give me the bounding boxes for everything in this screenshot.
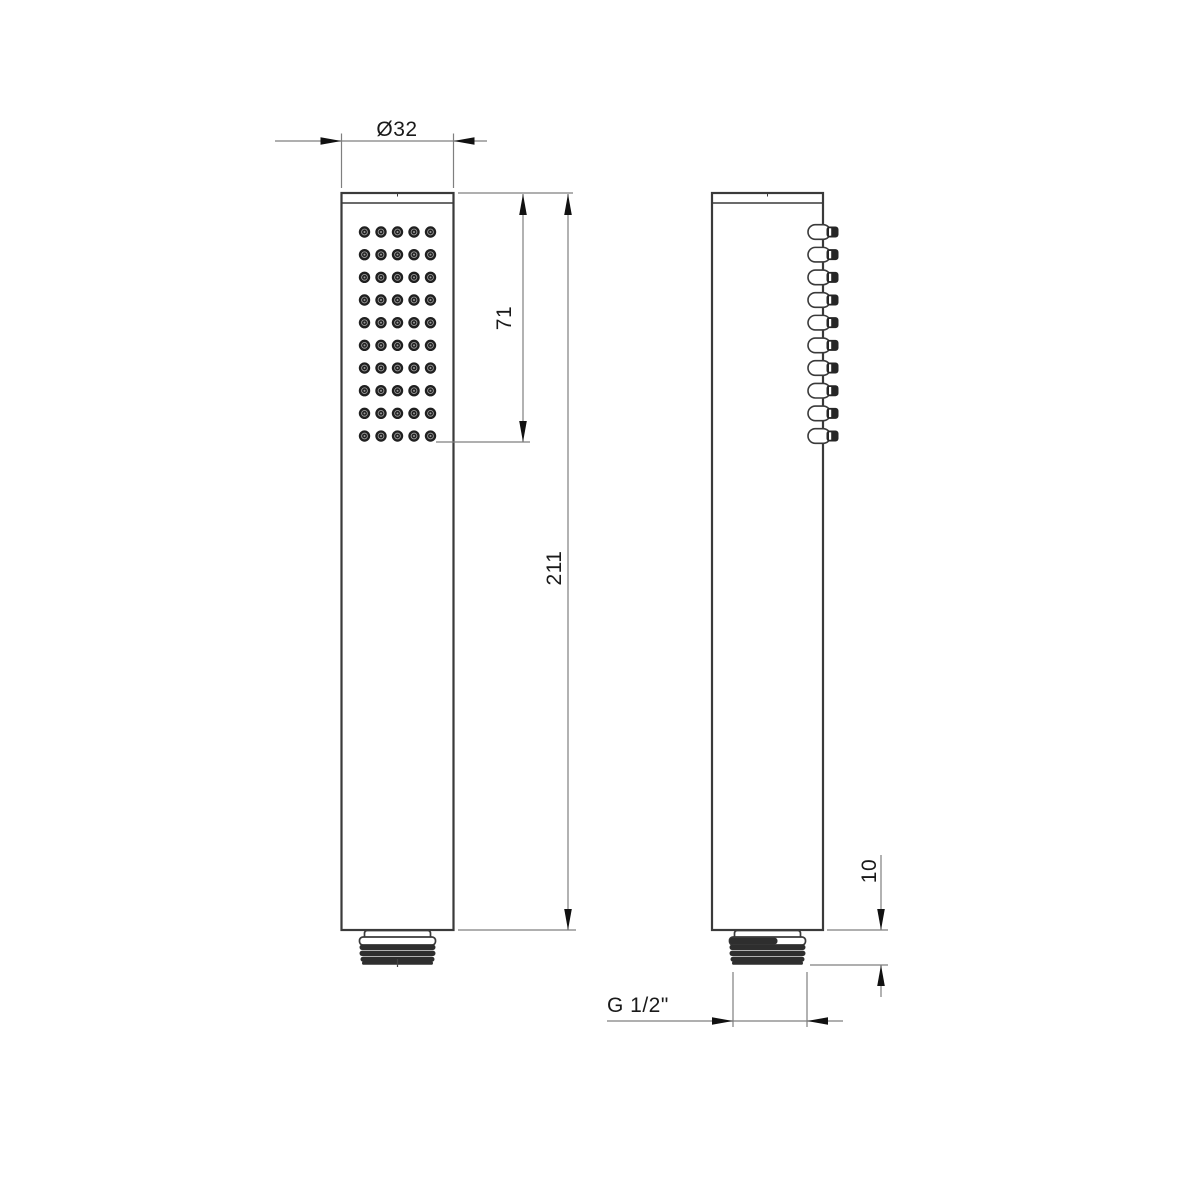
arrowhead <box>807 1017 828 1024</box>
nozzle-center <box>430 390 432 392</box>
nozzle-center <box>413 299 415 301</box>
side-nozzle-tip-slit <box>829 296 831 303</box>
nozzle-center <box>430 299 432 301</box>
dim-overall-length-label: 211 <box>543 551 566 586</box>
dim-thread-length-label: 10 <box>858 859 881 883</box>
nozzle-center <box>413 412 415 414</box>
nozzle-center <box>380 254 382 256</box>
nozzle-center <box>364 276 366 278</box>
nozzle-center <box>430 435 432 437</box>
nozzle-center <box>413 344 415 346</box>
nozzle-center <box>413 254 415 256</box>
side-nozzle-tip-slit <box>829 432 831 439</box>
front-connector <box>360 931 436 968</box>
side-nozzle-tip <box>827 317 839 328</box>
nozzle-center <box>380 344 382 346</box>
side-connector-flange-shadow <box>730 938 778 945</box>
nozzle-center <box>380 276 382 278</box>
nozzle-center <box>364 231 366 233</box>
nozzle-center <box>364 344 366 346</box>
thread-ridge <box>732 961 803 964</box>
nozzle-center <box>380 299 382 301</box>
dim-diameter-label: Ø32 <box>376 118 417 141</box>
side-nozzle-tip <box>827 408 839 419</box>
nozzle-center <box>397 299 399 301</box>
arrowhead <box>519 421 527 442</box>
arrowhead <box>564 194 572 215</box>
nozzle-center <box>397 412 399 414</box>
thread-ridge <box>360 945 436 950</box>
nozzle-center <box>430 344 432 346</box>
dim-thread-size: G 1/2" <box>607 972 843 1027</box>
thread-ridge <box>731 957 805 962</box>
nozzle-center <box>380 322 382 324</box>
side-nozzle-tip <box>827 385 839 396</box>
side-nozzle-tip <box>827 340 839 351</box>
side-nozzle-tip <box>827 431 839 442</box>
nozzle-center <box>364 322 366 324</box>
side-nozzle-tip-slit <box>829 319 831 326</box>
side-nozzle-tip-slit <box>829 387 831 394</box>
thread-ridge <box>730 951 806 956</box>
side-nozzle-tip-slit <box>829 228 831 235</box>
dim-overall-length: 211 <box>458 194 576 930</box>
nozzle-center <box>430 254 432 256</box>
nozzle-center <box>413 231 415 233</box>
arrowhead <box>877 909 885 930</box>
side-view <box>712 193 839 965</box>
nozzle-center <box>413 367 415 369</box>
side-nozzle-tip-slit <box>829 251 831 258</box>
nozzle-center <box>430 367 432 369</box>
side-nozzle-tip-slit <box>829 342 831 349</box>
nozzle-center <box>364 412 366 414</box>
nozzle-center <box>380 435 382 437</box>
side-nozzle-tip <box>827 227 839 238</box>
nozzle-center <box>364 435 366 437</box>
nozzle-center <box>430 276 432 278</box>
side-nozzle-tip-slit <box>829 364 831 371</box>
nozzle-center <box>397 231 399 233</box>
side-connector <box>730 931 806 965</box>
nozzle-center <box>380 412 382 414</box>
nozzle-center <box>397 322 399 324</box>
thread-ridge <box>730 945 806 950</box>
nozzle-center <box>430 412 432 414</box>
technical-drawing: Ø32 71 211 10 G 1/2" <box>0 0 1200 1200</box>
nozzle-center <box>397 254 399 256</box>
arrowhead <box>519 194 527 215</box>
nozzle-center <box>397 367 399 369</box>
nozzle-center <box>364 367 366 369</box>
dim-thread-size-label: G 1/2" <box>607 994 669 1017</box>
dim-nozzle-zone-label: 71 <box>493 306 516 330</box>
front-view <box>342 193 454 967</box>
side-nozzle-tip-slit <box>829 274 831 281</box>
arrowhead <box>712 1017 733 1024</box>
drawing-canvas: Ø32 71 211 10 G 1/2" <box>0 0 1200 1200</box>
arrowhead <box>877 965 885 986</box>
nozzle-center <box>364 390 366 392</box>
nozzle-center <box>380 367 382 369</box>
nozzle-center <box>430 322 432 324</box>
nozzle-center <box>397 390 399 392</box>
nozzle-center <box>413 276 415 278</box>
side-nozzle-tip <box>827 363 839 374</box>
side-body <box>712 193 823 930</box>
nozzle-center <box>397 344 399 346</box>
nozzle-center <box>413 390 415 392</box>
front-connector-flange <box>360 937 436 945</box>
dim-nozzle-zone: 71 <box>436 193 573 442</box>
nozzle-center <box>413 435 415 437</box>
thread-ridge <box>360 951 436 956</box>
nozzle-center <box>397 276 399 278</box>
arrowhead <box>321 137 342 144</box>
arrowhead <box>564 909 572 930</box>
nozzle-center <box>430 231 432 233</box>
nozzle-center <box>413 322 415 324</box>
nozzle-center <box>380 231 382 233</box>
dim-diameter: Ø32 <box>275 118 487 188</box>
nozzle-center <box>364 299 366 301</box>
nozzle-center <box>380 390 382 392</box>
side-nozzle-tip <box>827 272 839 283</box>
nozzle-center <box>364 254 366 256</box>
side-nozzle-tip-slit <box>829 410 831 417</box>
side-nozzle-tip <box>827 295 839 306</box>
side-nozzle-tip <box>827 249 839 260</box>
nozzle-center <box>397 435 399 437</box>
arrowhead <box>454 137 475 144</box>
